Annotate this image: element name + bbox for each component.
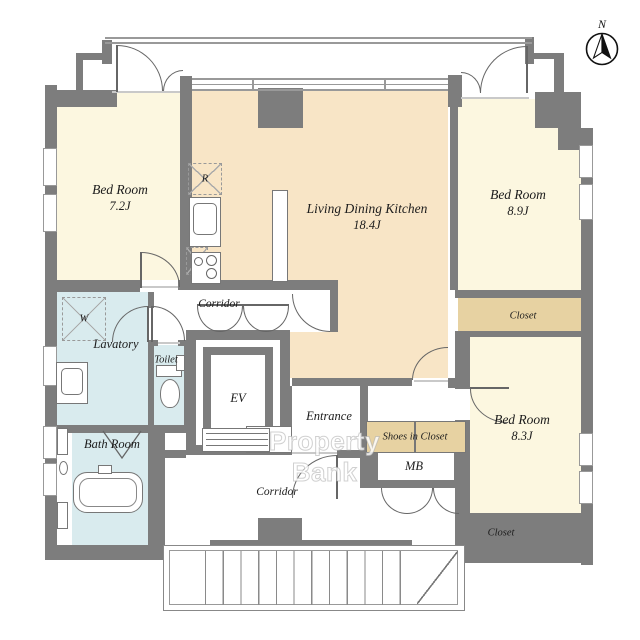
door-leaf bbox=[526, 46, 528, 93]
door-leaf bbox=[147, 306, 149, 342]
window bbox=[43, 426, 57, 459]
wall-mb-bottom bbox=[363, 480, 467, 488]
wall-toilet-left bbox=[148, 341, 154, 425]
balcony-wall bbox=[83, 53, 102, 60]
room-label-bath-room: Bath Room bbox=[84, 437, 140, 453]
wall-bath-right bbox=[148, 425, 165, 560]
stairs-treads bbox=[205, 551, 417, 605]
threshold bbox=[292, 452, 337, 454]
door-leaf bbox=[151, 306, 153, 342]
door-arc-entrance bbox=[292, 455, 337, 498]
window-mullion bbox=[252, 78, 254, 91]
bedroom-3-size: 8.3J bbox=[494, 429, 550, 445]
balcony-wall bbox=[76, 53, 83, 92]
mb-door-arc bbox=[433, 488, 459, 514]
compass-north-label: N bbox=[597, 17, 607, 31]
door-arc-balcony-bedroom1 bbox=[163, 70, 183, 91]
room-label-lavatory: Lavatory bbox=[93, 337, 138, 353]
bedroom-2-name: Bed Room bbox=[490, 187, 546, 204]
elevator-door-line bbox=[206, 439, 268, 440]
wall-ldk-bedroom2 bbox=[450, 99, 458, 290]
wall-notch bbox=[558, 128, 581, 150]
mb-door-arc bbox=[381, 488, 407, 514]
door-leaf bbox=[470, 387, 509, 389]
threshold bbox=[414, 380, 448, 382]
wall-corridor-ldk bbox=[330, 288, 338, 332]
room-label-toilet: Toilet bbox=[154, 353, 178, 366]
wall-ldk-bottom bbox=[292, 378, 412, 386]
door-arc-balcony-bedroom2 bbox=[480, 46, 527, 93]
toilet-bowl bbox=[160, 379, 180, 408]
wall-closet-east-top bbox=[455, 290, 581, 298]
refrigerator-label: R bbox=[202, 172, 208, 185]
door-arc-balcony-bedroom1 bbox=[117, 45, 163, 91]
washing-machine-label: W bbox=[80, 312, 89, 325]
ldk-size: 18.4J bbox=[307, 218, 428, 234]
kitchen-counter bbox=[272, 190, 288, 282]
room-label-mb: MB bbox=[405, 459, 423, 475]
threshold bbox=[461, 97, 529, 99]
room-label-ev: EV bbox=[230, 391, 245, 407]
compass: N bbox=[580, 14, 624, 72]
door-arc-balcony-bedroom2 bbox=[461, 72, 481, 93]
window bbox=[43, 194, 57, 232]
wall-closet-east-bottom bbox=[455, 331, 581, 337]
compass-needle-east bbox=[602, 34, 611, 58]
wall-bedroom1-bottom bbox=[45, 280, 140, 292]
window bbox=[579, 145, 593, 178]
wall bbox=[165, 450, 186, 458]
door-leaf bbox=[116, 45, 118, 92]
bath-fixture bbox=[57, 502, 68, 529]
window bbox=[579, 184, 593, 220]
balcony-rail bbox=[105, 42, 532, 44]
door-leaf bbox=[140, 252, 142, 288]
room-label-corridor-upper: Corridor bbox=[198, 297, 240, 311]
balcony-post bbox=[554, 53, 564, 93]
bathtub-inner bbox=[79, 478, 137, 507]
room-label-bedroom-3: Bed Room 8.3J bbox=[494, 412, 550, 445]
room-label-corridor-lower: Corridor bbox=[256, 485, 298, 499]
balcony-wall bbox=[534, 53, 554, 59]
stove-burner bbox=[194, 257, 203, 266]
wall-bottom-left bbox=[45, 545, 165, 560]
bedroom-2-size: 8.9J bbox=[490, 204, 546, 220]
wall-notch bbox=[535, 92, 581, 128]
threshold bbox=[112, 91, 180, 93]
room-label-entrance: Entrance bbox=[306, 409, 352, 425]
stove-burner bbox=[206, 255, 217, 266]
floor-plan: Bed Room 7.2J Living Dining Kitchen 18.4… bbox=[0, 0, 640, 640]
bath-tap bbox=[98, 465, 112, 474]
bedroom-3-name: Bed Room bbox=[494, 412, 550, 429]
window-band bbox=[192, 84, 448, 85]
bath-fixture bbox=[57, 428, 68, 455]
bedroom-1-name: Bed Room bbox=[92, 182, 148, 199]
window bbox=[43, 463, 57, 496]
wall-bedroom3-left bbox=[455, 337, 470, 389]
room-label-bedroom-1: Bed Room 7.2J bbox=[92, 182, 148, 215]
lavatory-sink bbox=[61, 368, 83, 395]
mb-door-arc bbox=[407, 488, 433, 514]
window bbox=[579, 433, 593, 466]
bath-fixture bbox=[59, 461, 68, 475]
kitchen-sink bbox=[193, 203, 217, 235]
window-band bbox=[192, 78, 448, 80]
room-label-ldk: Living Dining Kitchen 18.4J bbox=[307, 201, 428, 234]
elevator-door bbox=[202, 428, 270, 452]
threshold bbox=[158, 342, 180, 344]
door-leaf bbox=[336, 455, 338, 499]
window bbox=[43, 148, 57, 186]
room-label-closet-east: Closet bbox=[510, 309, 537, 322]
compass-needle-west bbox=[594, 34, 603, 58]
bedroom-1-size: 7.2J bbox=[92, 199, 148, 215]
ldk-name: Living Dining Kitchen bbox=[307, 201, 428, 218]
room-label-shoes-in-closet: Shoes in Closet bbox=[383, 430, 448, 443]
wall-bottom-right bbox=[455, 513, 593, 563]
wall-top-left bbox=[45, 90, 117, 107]
room-label-bedroom-2: Bed Room 8.9J bbox=[490, 187, 546, 220]
window bbox=[579, 471, 593, 504]
wall bbox=[337, 450, 362, 458]
stove-burner bbox=[206, 268, 217, 279]
elevator-door-line bbox=[206, 445, 268, 446]
stairs-diagonal bbox=[417, 551, 458, 604]
window bbox=[43, 346, 57, 386]
window-mullion bbox=[384, 78, 386, 91]
room-label-closet-south: Closet bbox=[488, 526, 515, 539]
elevator-door-line bbox=[206, 433, 268, 434]
window-band bbox=[192, 89, 448, 91]
wall-ldk-column bbox=[258, 88, 303, 128]
balcony-rail bbox=[105, 37, 532, 39]
